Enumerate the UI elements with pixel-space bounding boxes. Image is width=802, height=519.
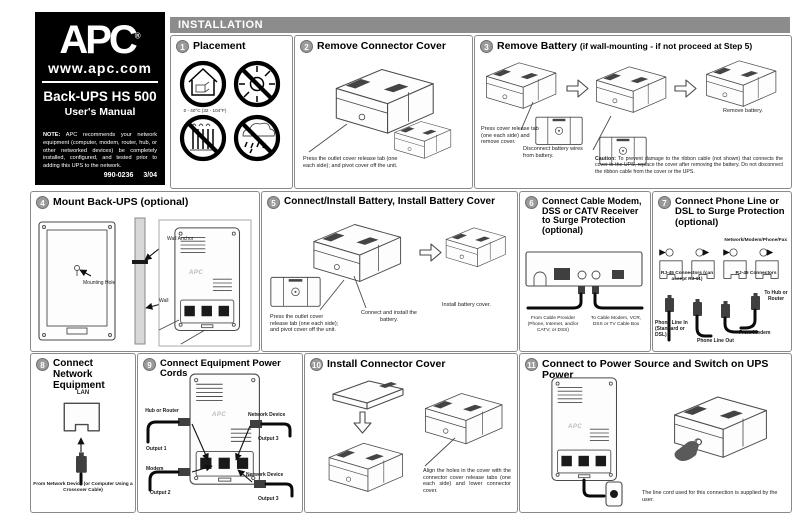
step-10-badge: 10 [310,358,323,371]
step-7-header: 7 Connect Phone Line or DSL to Surge Pro… [653,192,791,228]
no-sunlight-icon [236,63,278,105]
doc-number: 990-0236 [104,172,134,179]
wall-anchor-label: Wall Anchor [167,236,209,242]
from-provider-label: From Cable Provider (Phone, Internet, an… [524,316,582,334]
step-1-title: Placement [193,40,246,52]
line-cord [584,480,604,496]
step-11-caption: The line cord used for this connection i… [642,490,782,503]
power-inlet [554,268,570,280]
network-modem-phone-fax-label: Network/Modem/Phone/Fax [683,238,787,244]
step-10-panel: 10 Install Connector Cover Align the hol… [304,353,518,513]
brand-url: www.apc.com [35,60,165,76]
step-1-badge: 1 [176,40,189,53]
step-2-badge: 2 [300,40,313,53]
note-label: NOTE: [43,132,60,138]
registered-mark: ® [135,32,141,41]
ups-with-power-button [675,397,767,461]
phone-plug-icon [693,299,702,316]
doc-number-line: 990-02363/04 [94,172,157,179]
step-4-badge: 4 [36,196,49,209]
phone-line-out-label: Phone Line Out [697,338,741,344]
step-10-header: 10 Install Connector Cover [305,354,517,371]
rj45-jack-icon [64,403,99,431]
manual-page: APC® www.apc.com Back-UPS HS 500 User's … [0,0,802,519]
step-9-panel: 9 Connect Equipment Power Cords Hub or R… [137,353,303,513]
step-11-panel: 11 Connect to Power Source and Switch on… [519,353,792,513]
network-device-bottom-label: Network Device [246,472,298,478]
step-8-panel: 8 Connect Network Equipment LAN From Net… [30,353,136,513]
to-hub-router-label: To Hub or Router [763,290,789,302]
phone-line-in-label: Phone Line In (Standard or DSL) [655,320,695,338]
rj45-left-label: RJ-45 Connectors (can accept RJ-11) [653,271,721,283]
power-plug-icon [178,418,190,426]
step-2-header: 2 Remove Connector Cover [295,36,472,53]
network-device-top-label: Network Device [248,412,300,418]
output-2-label: Output 2 [150,490,186,496]
step-6-badge: 6 [525,196,538,209]
to-device-label: To Cable Modem, VCR, DSS or TV Cable Box [586,316,646,328]
network-plug-icon [751,293,760,310]
rj45-right-label: RJ-45 Connectors [723,271,789,277]
step-4-title: Mount Back-UPS (optional) [53,196,188,208]
connector-panel [526,252,642,286]
wall-label: Wall [159,298,181,304]
step-6-title: Connect Cable Modem, DSS or CATV Receive… [542,196,645,236]
step-6-header: 6 Connect Cable Modem, DSS or CATV Recei… [520,192,650,236]
power-plug-icon [178,468,190,476]
step-3-caption-remove: Remove battery. [723,108,783,115]
step-1-panel: 1 Placement [170,35,293,189]
step-3-panel: 3 Remove Battery (if wall-mounting - if … [474,35,792,189]
no-heat-icon [182,117,224,159]
step-2-panel: 2 Remove Connector Cover Press the outle… [294,35,473,189]
modem-label: Modem [146,466,176,472]
step-3-badge: 3 [480,40,493,53]
device-logo: APC [568,424,582,430]
product-name: Back-UPS HS 500 [35,89,165,104]
step-2-caption: Press the outlet cover release tab (one … [303,156,403,169]
step-5-caption-connect: Connect and install the battery. [354,310,424,323]
step-10-title: Install Connector Cover [327,358,445,370]
step-3-caution: Caution: To prevent damage to the ribbon… [595,156,783,175]
hub-or-router-label: Hub or Router [140,408,184,414]
coax-cable-to-device [595,294,642,308]
step-8-caption: From Network Device (or Computer Using a… [33,482,133,494]
caution-label: Caution: [595,156,616,162]
step-3-caption-disconnect: Disconnect battery wires from battery. [523,146,585,159]
wall-strip [132,218,148,344]
step-4-panel: 4 Mount Back-UPS (optional) [30,191,260,352]
output-3-bottom-label: Output 3 [258,496,294,502]
step-7-title: Connect Phone Line or DSL to Surge Prote… [675,196,785,228]
step-3-header: 3 Remove Battery (if wall-mounting - if … [475,36,791,53]
step-5-caption-cover: Install battery cover. [442,302,512,309]
lan-label: LAN [31,390,135,397]
mount-backups-illustration [31,210,259,351]
step-8-badge: 8 [36,358,49,371]
step-6-panel: 6 Connect Cable Modem, DSS or CATV Recei… [519,191,651,352]
doc-date: 3/04 [143,172,157,179]
signal-out-icon [696,249,709,256]
step-9-badge: 9 [143,358,156,371]
output-3-top-label: Output 3 [258,436,294,442]
step-5-title: Connect/Install Battery, Install Battery… [284,196,495,208]
indoor-placement-icon [182,63,224,105]
step-5-panel: 5 Connect/Install Battery, Install Batte… [261,191,518,352]
phone-plug-icon [721,301,730,318]
signal-in-icon [724,249,738,256]
temperature-range-label: 0 - 40°C (32 - 104°F) [173,108,237,114]
step-5-badge: 5 [267,196,280,209]
note-text: APC recommends your network equipment (c… [43,132,157,169]
brand-note: NOTE: APC recommends your network equipm… [35,132,165,171]
step-11-badge: 11 [525,358,538,371]
step-7-panel: 7 Connect Phone Line or DSL to Surge Pro… [652,191,792,352]
mounting-hole-label: Mounting Hole [83,280,119,286]
no-rain-icon [236,117,278,159]
step-5-caption-release: Press the outlet cover release tab (one … [270,314,340,334]
coax-cable-from-provider [528,294,581,308]
network-plug-icon [76,452,87,472]
power-plug-icon [254,480,266,488]
step-10-caption: Align the holes in the cover with the co… [423,468,511,495]
brand-panel: APC® www.apc.com Back-UPS HS 500 User's … [35,12,165,185]
device-logo: APC [212,412,226,418]
phone-plug-icon [665,295,674,312]
manual-subtitle: User's Manual [35,106,165,118]
wall-outlet-icon [606,482,622,506]
network-jack-illustration [31,400,135,478]
step-3-title: Remove Battery (if wall-mounting - if no… [497,40,752,52]
step-7-badge: 7 [658,196,671,209]
step-3-caption-release: Press cover release tab (one each side) … [481,126,545,146]
step-5-header: 5 Connect/Install Battery, Install Batte… [262,192,517,209]
installation-header: INSTALLATION [170,17,790,33]
from-modem-label: From Modem [739,330,789,336]
signal-out-icon [760,249,773,256]
step-8-title: Connect Network Equipment [53,358,130,391]
step-1-header: 1 Placement [171,36,292,53]
output-1-label: Output 1 [146,446,182,452]
step-3-title-suffix: (if wall-mounting - if not proceed at St… [580,41,752,51]
apc-logo: APC® [35,20,165,60]
caution-text: To prevent damage to the ribbon cable (n… [595,156,783,175]
signal-in-icon [660,249,674,256]
step-2-title: Remove Connector Cover [317,40,446,52]
step-4-header: 4 Mount Back-UPS (optional) [31,192,259,209]
brand-divider [42,81,158,83]
step-8-header: 8 Connect Network Equipment [31,354,135,391]
wall-anchor-bolt [132,260,148,264]
power-plug-icon [250,420,262,428]
device-logo: APC [189,270,203,276]
rj-port [612,270,624,279]
